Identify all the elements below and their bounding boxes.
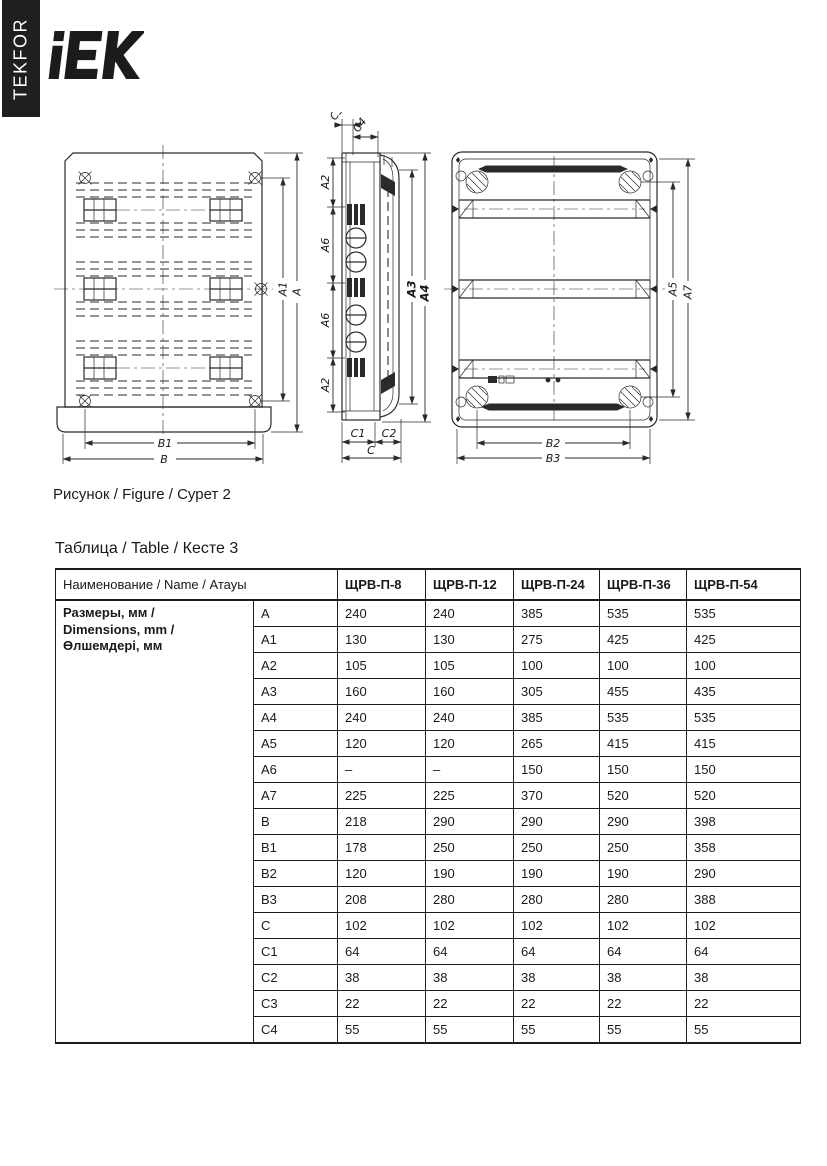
value-cell: 38 xyxy=(426,965,514,991)
knockout-icon xyxy=(619,386,641,408)
value-cell: 102 xyxy=(514,913,600,939)
dim-label-a5: A5 xyxy=(667,282,680,298)
value-cell: 520 xyxy=(687,783,801,809)
value-cell: 208 xyxy=(338,887,426,913)
value-cell: – xyxy=(426,757,514,783)
value-cell: 38 xyxy=(600,965,687,991)
value-cell: 190 xyxy=(514,861,600,887)
value-cell: 218 xyxy=(338,809,426,835)
value-cell: 535 xyxy=(600,705,687,731)
param-cell: C1 xyxy=(254,939,338,965)
value-cell: 535 xyxy=(600,600,687,627)
value-cell: 240 xyxy=(338,705,426,731)
knockout-icon xyxy=(466,171,488,193)
value-cell: 22 xyxy=(514,991,600,1017)
param-cell: B2 xyxy=(254,861,338,887)
tekfor-sidebar: TEKFOR xyxy=(2,0,40,117)
model-header: ЩРВ-П-12 xyxy=(426,569,514,600)
value-cell: 64 xyxy=(514,939,600,965)
value-cell: 290 xyxy=(514,809,600,835)
value-cell: 22 xyxy=(600,991,687,1017)
front-view: A1 A B1 B xyxy=(54,145,304,466)
dim-label-b1: B1 xyxy=(158,437,173,450)
value-cell: 55 xyxy=(338,1017,426,1044)
value-cell: 280 xyxy=(514,887,600,913)
value-cell: 250 xyxy=(426,835,514,861)
value-cell: – xyxy=(338,757,426,783)
side-view: A2 A6 A6 A2 A3 A4 C3 C4 xyxy=(319,112,432,463)
value-cell: 385 xyxy=(514,705,600,731)
param-cell: B xyxy=(254,809,338,835)
value-cell: 38 xyxy=(514,965,600,991)
knockout-icon xyxy=(466,386,488,408)
value-cell: 370 xyxy=(514,783,600,809)
value-cell: 250 xyxy=(514,835,600,861)
value-cell: 105 xyxy=(426,653,514,679)
param-cell: C2 xyxy=(254,965,338,991)
value-cell: 64 xyxy=(687,939,801,965)
value-cell: 535 xyxy=(687,705,801,731)
value-cell: 398 xyxy=(687,809,801,835)
value-cell: 102 xyxy=(600,913,687,939)
dim-label-b3: B3 xyxy=(546,452,561,465)
rail-row-1 xyxy=(452,200,657,218)
value-cell: 385 xyxy=(514,600,600,627)
value-cell: 102 xyxy=(687,913,801,939)
value-cell: 225 xyxy=(338,783,426,809)
value-cell: 425 xyxy=(600,627,687,653)
value-cell: 178 xyxy=(338,835,426,861)
model-header: ЩРВ-П-24 xyxy=(514,569,600,600)
screw-icon xyxy=(249,395,262,408)
value-cell: 240 xyxy=(426,705,514,731)
value-cell: 120 xyxy=(338,861,426,887)
dim-label-c: C xyxy=(367,444,375,457)
value-cell: 22 xyxy=(338,991,426,1017)
dim-label-a2: A2 xyxy=(319,175,332,191)
value-cell: 120 xyxy=(338,731,426,757)
model-header: ЩРВ-П-36 xyxy=(600,569,687,600)
value-cell: 55 xyxy=(687,1017,801,1044)
param-cell: A4 xyxy=(254,705,338,731)
value-cell: 105 xyxy=(338,653,426,679)
knockout-icon xyxy=(619,171,641,193)
param-cell: A3 xyxy=(254,679,338,705)
header-row: Наименование / Name / Атауы ЩРВ-П-8 ЩРВ-… xyxy=(56,569,801,600)
dim-label-a: A xyxy=(291,288,304,297)
value-cell: 102 xyxy=(426,913,514,939)
rear-view: A5 A7 B2 B3 xyxy=(444,152,695,465)
value-cell: 130 xyxy=(338,627,426,653)
value-cell: 265 xyxy=(514,731,600,757)
dim-label-a3: A3 xyxy=(405,281,419,299)
value-cell: 64 xyxy=(600,939,687,965)
table-row: Размеры, мм /Dimensions, mm /Өлшемдері, … xyxy=(56,600,801,627)
dim-label-a1: A1 xyxy=(277,282,290,298)
value-cell: 38 xyxy=(338,965,426,991)
table-title: Таблица / Table / Кесте 3 xyxy=(55,540,238,558)
param-cell: A2 xyxy=(254,653,338,679)
dim-label-a6: A6 xyxy=(319,313,332,329)
din-row-3 xyxy=(76,341,252,395)
value-cell: 38 xyxy=(687,965,801,991)
value-cell: 55 xyxy=(426,1017,514,1044)
value-cell: 130 xyxy=(426,627,514,653)
rail-row-3 xyxy=(452,360,657,378)
value-cell: 250 xyxy=(600,835,687,861)
param-cell: B1 xyxy=(254,835,338,861)
value-cell: 275 xyxy=(514,627,600,653)
param-cell: A6 xyxy=(254,757,338,783)
screw-icon xyxy=(249,172,262,185)
value-cell: 305 xyxy=(514,679,600,705)
dimensions-table: Наименование / Name / Атауы ЩРВ-П-8 ЩРВ-… xyxy=(55,568,801,1044)
value-cell: 100 xyxy=(600,653,687,679)
value-cell: 435 xyxy=(687,679,801,705)
dim-label-c3: C3 xyxy=(327,112,346,123)
value-cell: 190 xyxy=(600,861,687,887)
screw-icon xyxy=(79,395,92,408)
value-cell: 520 xyxy=(600,783,687,809)
dim-label-c2: C2 xyxy=(382,427,397,440)
catalog-page: TEKFOR xyxy=(0,0,827,1166)
param-cell: A5 xyxy=(254,731,338,757)
dim-label-a7: A7 xyxy=(682,285,695,301)
value-cell: 55 xyxy=(600,1017,687,1044)
value-cell: 425 xyxy=(687,627,801,653)
param-cell: B3 xyxy=(254,887,338,913)
table-body: Размеры, мм /Dimensions, mm /Өлшемдері, … xyxy=(56,600,801,1043)
value-cell: 280 xyxy=(426,887,514,913)
param-cell: C xyxy=(254,913,338,939)
dim-label-a2: A2 xyxy=(319,378,332,394)
value-cell: 64 xyxy=(338,939,426,965)
dim-label-b: B xyxy=(160,453,168,466)
value-cell: 102 xyxy=(338,913,426,939)
value-cell: 290 xyxy=(687,861,801,887)
value-cell: 160 xyxy=(426,679,514,705)
dim-label-a6: A6 xyxy=(319,238,332,254)
value-cell: 64 xyxy=(426,939,514,965)
value-cell: 100 xyxy=(687,653,801,679)
value-cell: 290 xyxy=(426,809,514,835)
value-cell: 120 xyxy=(426,731,514,757)
value-cell: 280 xyxy=(600,887,687,913)
dim-label-c1: C1 xyxy=(351,427,366,440)
value-cell: 388 xyxy=(687,887,801,913)
value-cell: 415 xyxy=(600,731,687,757)
value-cell: 160 xyxy=(338,679,426,705)
value-cell: 150 xyxy=(687,757,801,783)
figure-caption: Рисунок / Figure / Сурет 2 xyxy=(53,486,231,503)
model-header: ЩРВ-П-54 xyxy=(687,569,801,600)
row-group-label: Размеры, мм /Dimensions, mm /Өлшемдері, … xyxy=(56,600,254,1043)
param-cell: A xyxy=(254,600,338,627)
iek-logo xyxy=(48,28,144,82)
name-header: Наименование / Name / Атауы xyxy=(56,569,338,600)
value-cell: 240 xyxy=(338,600,426,627)
value-cell: 100 xyxy=(514,653,600,679)
din-row-1 xyxy=(76,183,252,237)
param-cell: C3 xyxy=(254,991,338,1017)
technical-drawing: A1 A B1 B xyxy=(40,112,720,472)
value-cell: 455 xyxy=(600,679,687,705)
value-cell: 290 xyxy=(600,809,687,835)
tekfor-label: TEKFOR xyxy=(11,17,32,99)
value-cell: 55 xyxy=(514,1017,600,1044)
param-cell: C4 xyxy=(254,1017,338,1044)
value-cell: 150 xyxy=(514,757,600,783)
value-cell: 240 xyxy=(426,600,514,627)
dim-label-b2: B2 xyxy=(546,437,561,450)
param-cell: A1 xyxy=(254,627,338,653)
param-cell: A7 xyxy=(254,783,338,809)
value-cell: 415 xyxy=(687,731,801,757)
value-cell: 225 xyxy=(426,783,514,809)
value-cell: 358 xyxy=(687,835,801,861)
value-cell: 150 xyxy=(600,757,687,783)
value-cell: 22 xyxy=(426,991,514,1017)
value-cell: 22 xyxy=(687,991,801,1017)
value-cell: 190 xyxy=(426,861,514,887)
dim-label-a4: A4 xyxy=(418,285,432,303)
model-header: ЩРВ-П-8 xyxy=(338,569,426,600)
value-cell: 535 xyxy=(687,600,801,627)
